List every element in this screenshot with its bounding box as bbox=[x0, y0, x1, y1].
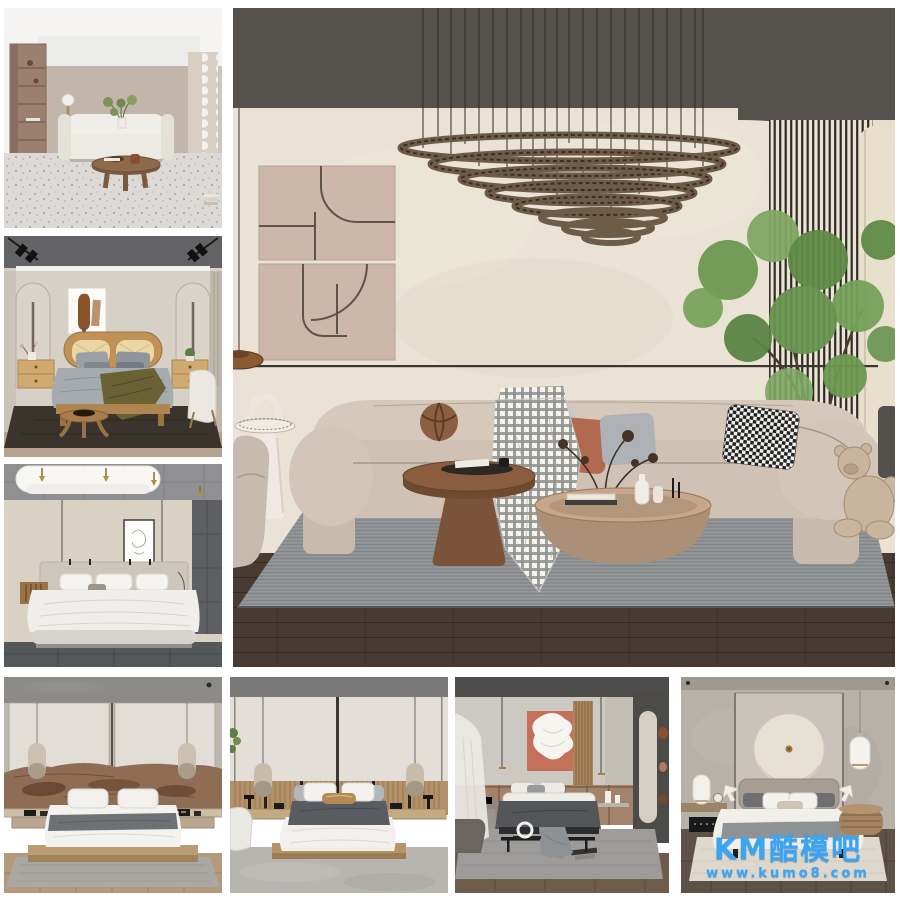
thumb-bedroom-canopy-bed[interactable] bbox=[4, 464, 222, 667]
lounge-chair bbox=[188, 370, 216, 428]
display-niche bbox=[633, 691, 669, 843]
ceiling bbox=[230, 677, 448, 697]
thumb-bedroom-terracotta-art[interactable] bbox=[455, 677, 669, 893]
thumb-bedroom-slat-wainscot[interactable] bbox=[230, 677, 448, 893]
wall-art bbox=[124, 520, 154, 564]
ceiling bbox=[681, 677, 895, 690]
thumb-bedroom-wood-bed[interactable] bbox=[4, 236, 222, 457]
preview-living-room-curved-sofa[interactable] bbox=[233, 8, 895, 667]
thumb-bedroom-circle-art[interactable]: KM酷模吧 www.kumo8.com bbox=[681, 677, 895, 893]
woven-tray-stack bbox=[839, 804, 883, 835]
thumb-bedroom-live-edge-headboard[interactable] bbox=[4, 677, 222, 893]
cream-sofa bbox=[58, 114, 174, 162]
bookshelf bbox=[10, 44, 46, 158]
thumb-living-room-cream-sofa[interactable] bbox=[4, 8, 222, 228]
ledge-right bbox=[384, 809, 446, 819]
wall-art bbox=[68, 288, 106, 334]
dark-vase bbox=[878, 406, 895, 478]
circle-disc-art bbox=[754, 714, 824, 784]
ball-cushion bbox=[420, 403, 458, 441]
white-chair bbox=[230, 808, 252, 851]
dark-chair bbox=[455, 819, 485, 853]
interior-render-collage: KM酷模吧 www.kumo8.com bbox=[0, 0, 900, 900]
book-stack bbox=[204, 194, 218, 205]
